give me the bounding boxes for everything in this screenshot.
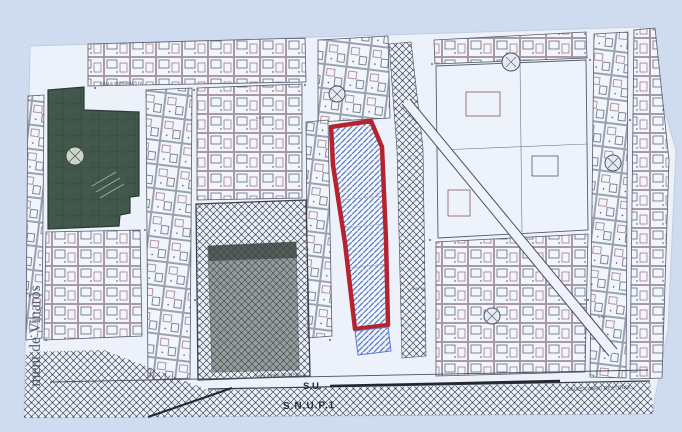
- city-block: [44, 230, 142, 340]
- spot-elevation: 5.00.36: [412, 287, 425, 291]
- street-label-top: CALLE BOVERALS IV: [100, 80, 142, 86]
- football-pitch: [208, 242, 299, 372]
- city-block: [318, 36, 390, 122]
- city-block: [88, 38, 306, 86]
- spot-elevation: 5.90: [598, 315, 605, 319]
- cadastral-map: CALLE BOVERALS IV CALLE CAMPO DE FUTBOL …: [0, 0, 682, 432]
- city-block: [146, 88, 192, 380]
- stamp-text: ment de Vinaròs: [27, 285, 44, 386]
- open-block: [436, 60, 588, 238]
- city-block: [306, 120, 332, 338]
- scanned-map-page: CALLE BOVERALS IV CALLE CAMPO DE FUTBOL …: [0, 0, 682, 432]
- spot-elevation: 6.09: [256, 116, 263, 120]
- zone-label-su: S.U.: [303, 381, 321, 392]
- hatched-subparcel: [355, 327, 391, 355]
- zone-label-snup: S.N.U.P.1: [283, 400, 335, 412]
- football-field-block: [196, 200, 310, 380]
- city-block: [436, 234, 588, 376]
- city-block: [197, 84, 302, 200]
